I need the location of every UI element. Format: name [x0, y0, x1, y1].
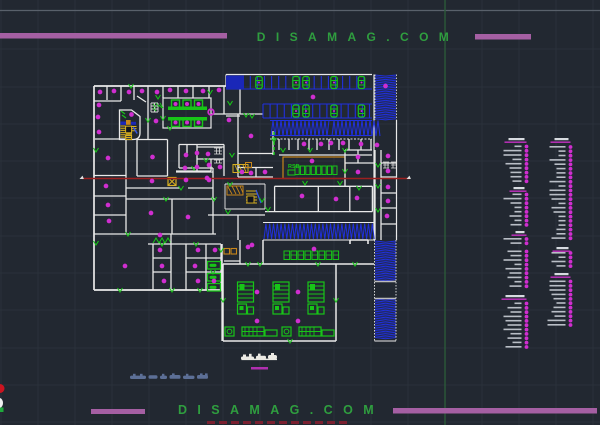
- svg-text:RSB: RSB: [288, 164, 300, 170]
- svg-text:DISAMAG.COM: DISAMAG.COM: [178, 403, 384, 417]
- svg-text:DISAMAG.COM: DISAMAG.COM: [257, 30, 459, 44]
